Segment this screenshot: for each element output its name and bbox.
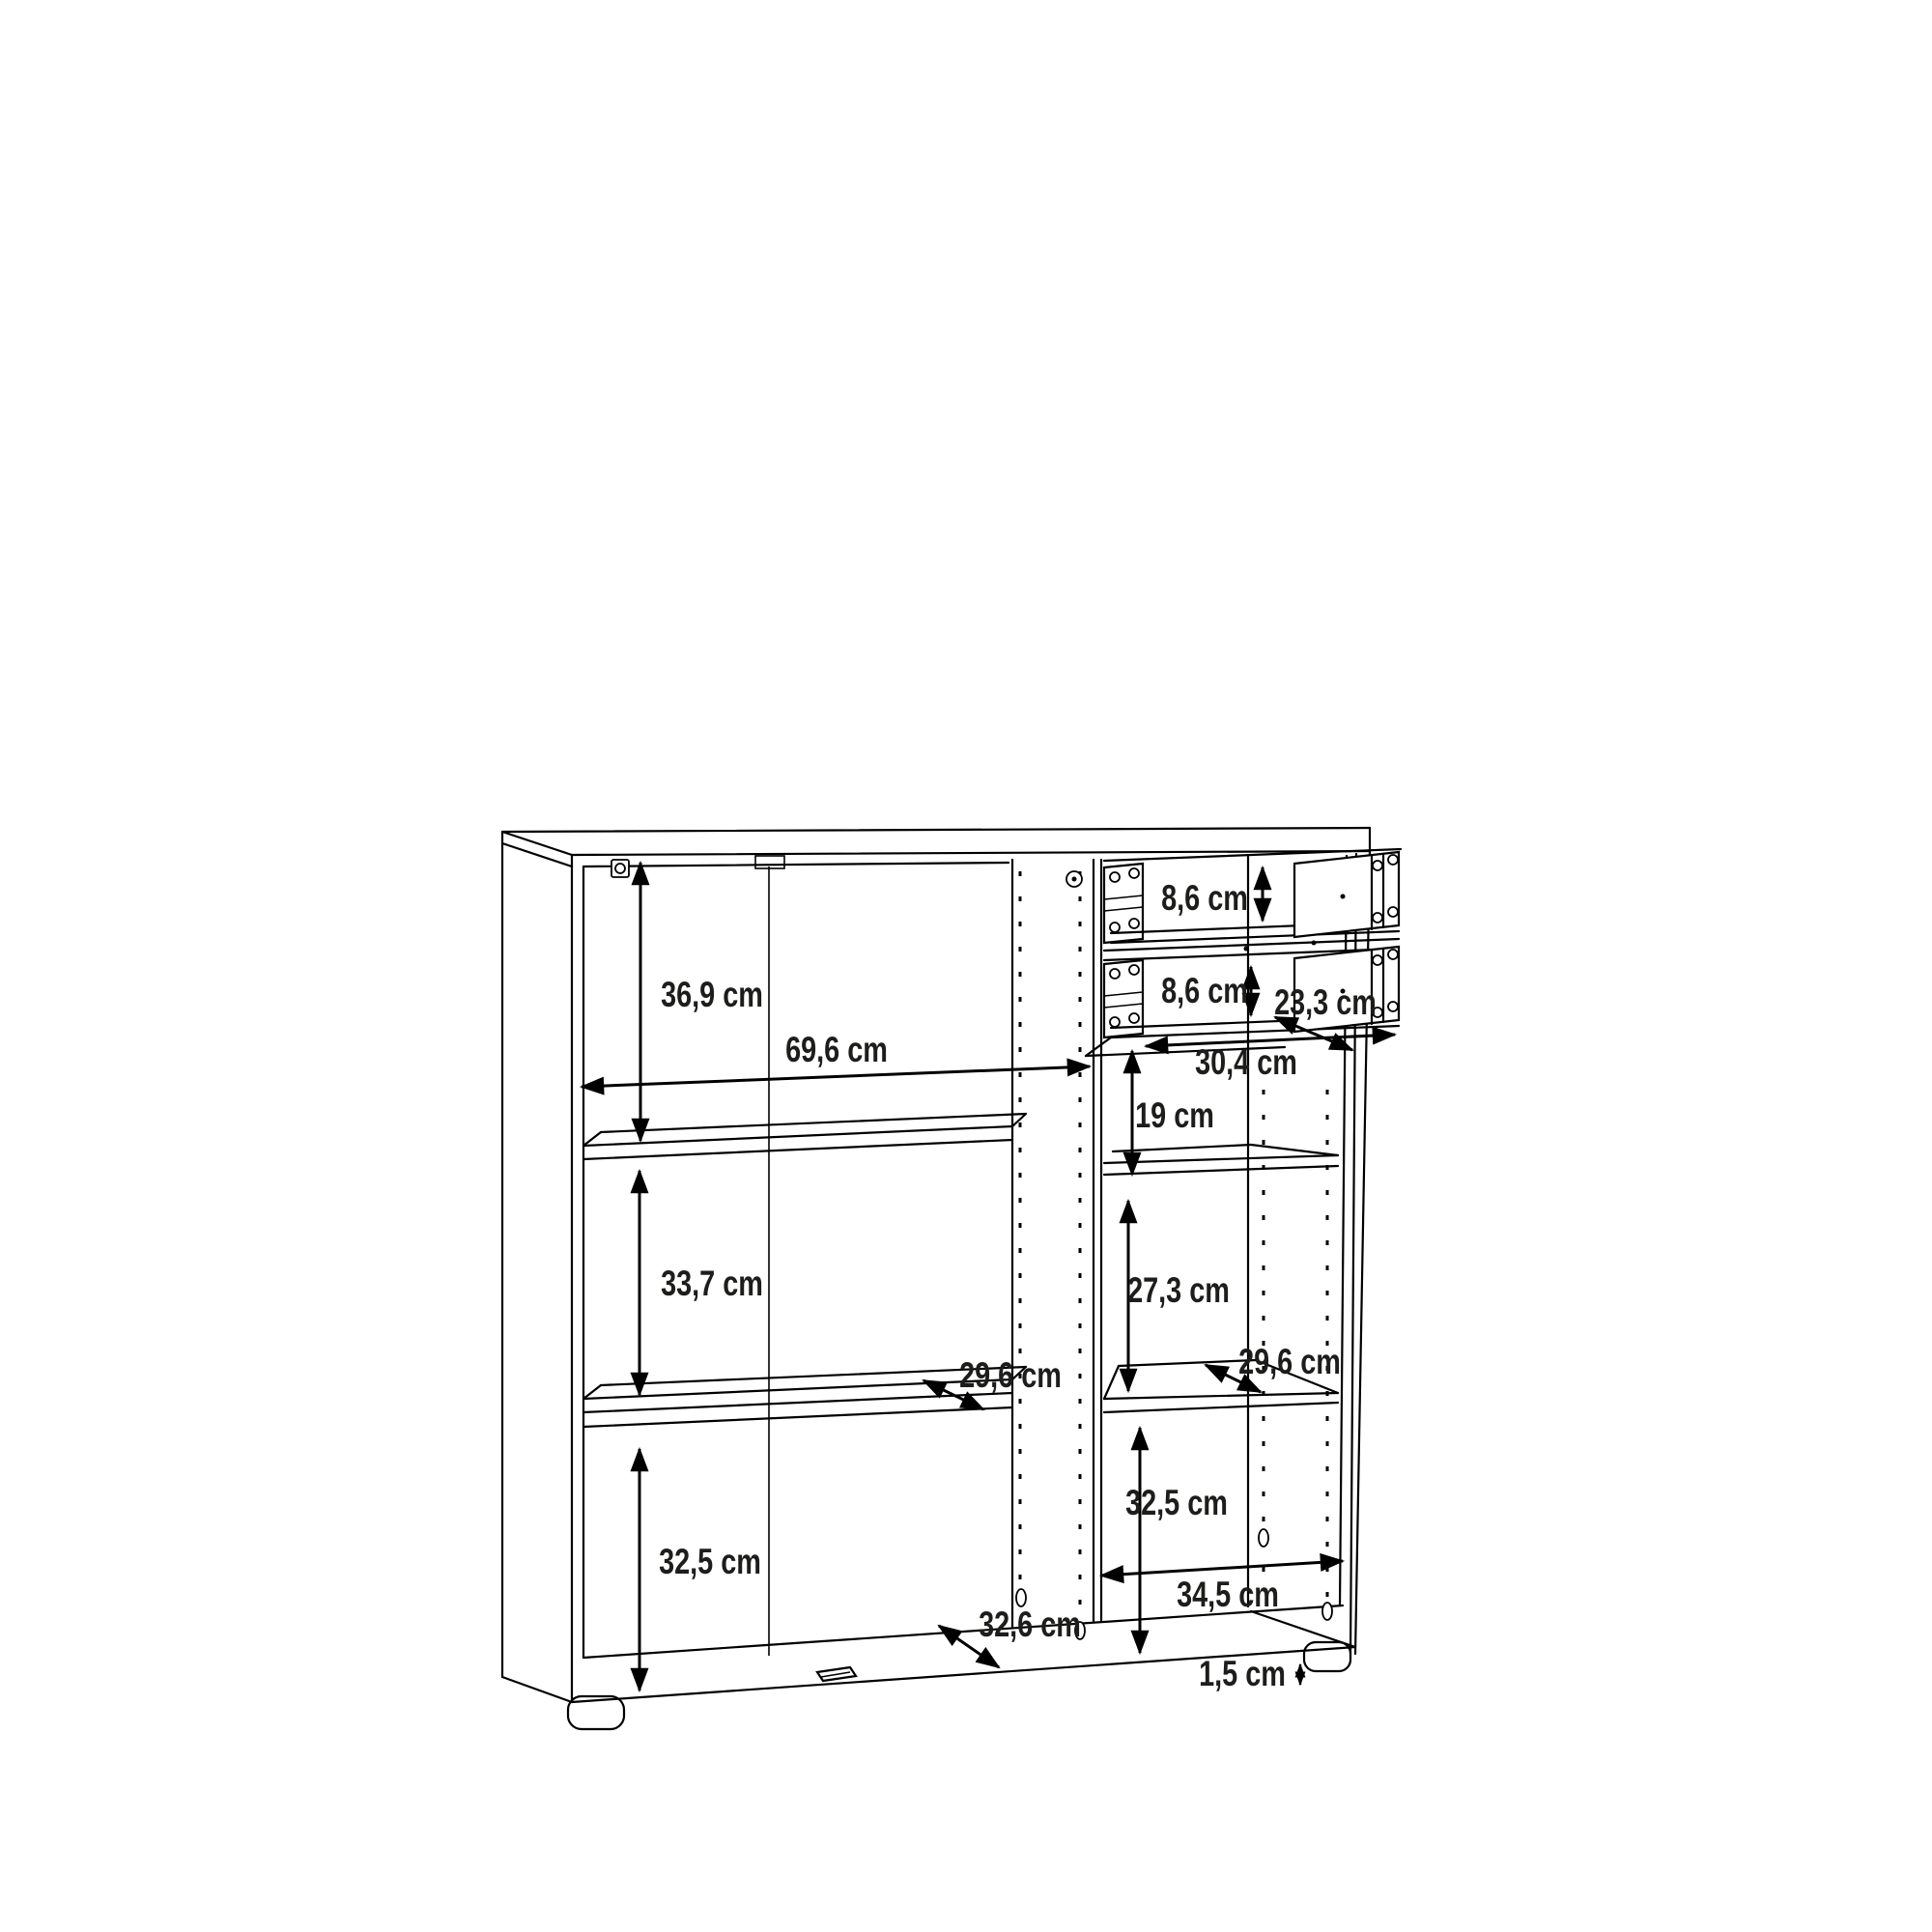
dimension-labels: 36,9 cm 69,6 cm 33,7 cm 32,5 cm 29,6 cm … bbox=[659, 879, 1377, 1694]
label-left-middle-height: 33,7 cm bbox=[661, 1264, 763, 1304]
dimension-diagram: 36,9 cm 69,6 cm 33,7 cm 32,5 cm 29,6 cm … bbox=[0, 0, 1932, 1932]
left-side-panel bbox=[502, 832, 583, 1702]
center-divider bbox=[1012, 860, 1101, 1639]
label-left-bottom-depth: 32,6 cm bbox=[979, 1605, 1081, 1645]
screw-fitting bbox=[611, 860, 629, 877]
label-right-bottom-height: 32,5 cm bbox=[1125, 1484, 1228, 1523]
label-left-top-height: 36,9 cm bbox=[661, 976, 763, 1015]
label-right-shelf-depth: 29,6 cm bbox=[1238, 1343, 1341, 1382]
back-panel bbox=[583, 856, 1009, 1656]
label-drawer-width: 30,4 cm bbox=[1195, 1043, 1297, 1083]
arrow-right-width bbox=[1101, 1561, 1343, 1576]
label-foot-height: 1,5 cm bbox=[1199, 1655, 1286, 1694]
left-shelf-upper bbox=[583, 1114, 1026, 1159]
cabinet-drawing: 36,9 cm 69,6 cm 33,7 cm 32,5 cm 29,6 cm … bbox=[0, 0, 1932, 1932]
label-left-width: 69,6 cm bbox=[785, 1031, 888, 1070]
drawer-1 bbox=[1104, 852, 1399, 943]
label-drawer2-height: 8,6 cm bbox=[1161, 972, 1248, 1011]
label-right-middle-height: 27,3 cm bbox=[1127, 1271, 1230, 1311]
right-shelf-upper bbox=[1104, 1145, 1338, 1175]
label-right-top-height: 19 cm bbox=[1135, 1096, 1214, 1136]
label-left-shelf-depth: 29,6 cm bbox=[959, 1356, 1062, 1396]
label-right-width: 34,5 cm bbox=[1177, 1576, 1279, 1615]
label-drawer1-height: 8,6 cm bbox=[1161, 879, 1248, 919]
label-drawer-depth: 23,3 cm bbox=[1274, 983, 1377, 1023]
plinth-clip bbox=[817, 1667, 856, 1681]
foot-right bbox=[1304, 1642, 1350, 1671]
label-left-bottom-height: 32,5 cm bbox=[659, 1543, 761, 1582]
cabinet-top-panel bbox=[502, 828, 1370, 867]
